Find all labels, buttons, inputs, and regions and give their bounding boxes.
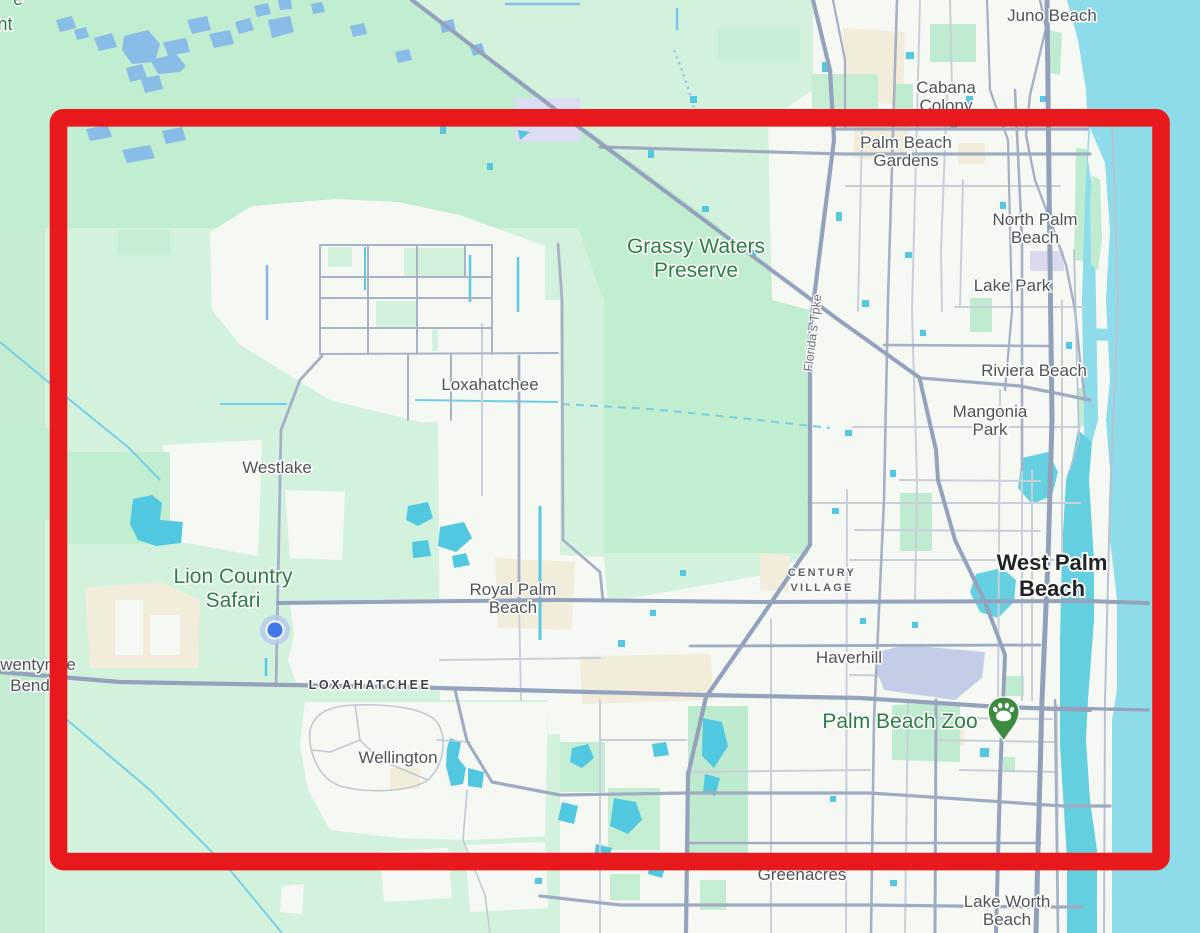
svg-text:CENTURY: CENTURY <box>788 567 856 579</box>
svg-text:Cabana: Cabana <box>916 78 976 97</box>
svg-text:Palm Beach: Palm Beach <box>860 133 952 152</box>
svg-text:Gardens: Gardens <box>873 151 938 170</box>
svg-text:ent: ent <box>0 14 13 34</box>
svg-text:Safari: Safari <box>206 589 261 612</box>
svg-text:Haverhill: Haverhill <box>816 648 882 667</box>
svg-text:Loxahatchee: Loxahatchee <box>441 375 538 394</box>
svg-text:West Palm: West Palm <box>997 550 1108 575</box>
svg-text:Palm Beach Zoo: Palm Beach Zoo <box>822 710 977 733</box>
svg-text:e: e <box>13 0 23 9</box>
svg-text:Beach: Beach <box>1011 228 1059 247</box>
svg-text:Park: Park <box>973 420 1008 439</box>
svg-text:Wellington: Wellington <box>358 748 437 767</box>
svg-text:VILLAGE: VILLAGE <box>790 582 853 594</box>
svg-text:Grassy Waters: Grassy Waters <box>627 235 765 258</box>
svg-text:Westlake: Westlake <box>242 458 312 477</box>
svg-text:Bend: Bend <box>10 676 50 695</box>
svg-text:Beach: Beach <box>489 598 537 617</box>
svg-text:Riviera Beach: Riviera Beach <box>981 361 1087 380</box>
svg-text:Beach: Beach <box>1019 576 1085 601</box>
svg-text:Beach: Beach <box>983 910 1031 929</box>
svg-text:Lion Country: Lion Country <box>173 565 293 588</box>
svg-text:Lake Worth: Lake Worth <box>964 892 1051 911</box>
svg-text:Lake Park: Lake Park <box>974 276 1051 295</box>
svg-text:North Palm: North Palm <box>992 210 1077 229</box>
svg-text:Preserve: Preserve <box>654 259 738 282</box>
svg-text:Mangonia: Mangonia <box>953 402 1028 421</box>
svg-text:Royal Palm: Royal Palm <box>470 580 557 599</box>
svg-text:Juno Beach: Juno Beach <box>1007 6 1097 25</box>
svg-text:LOXAHATCHEE: LOXAHATCHEE <box>309 678 432 692</box>
